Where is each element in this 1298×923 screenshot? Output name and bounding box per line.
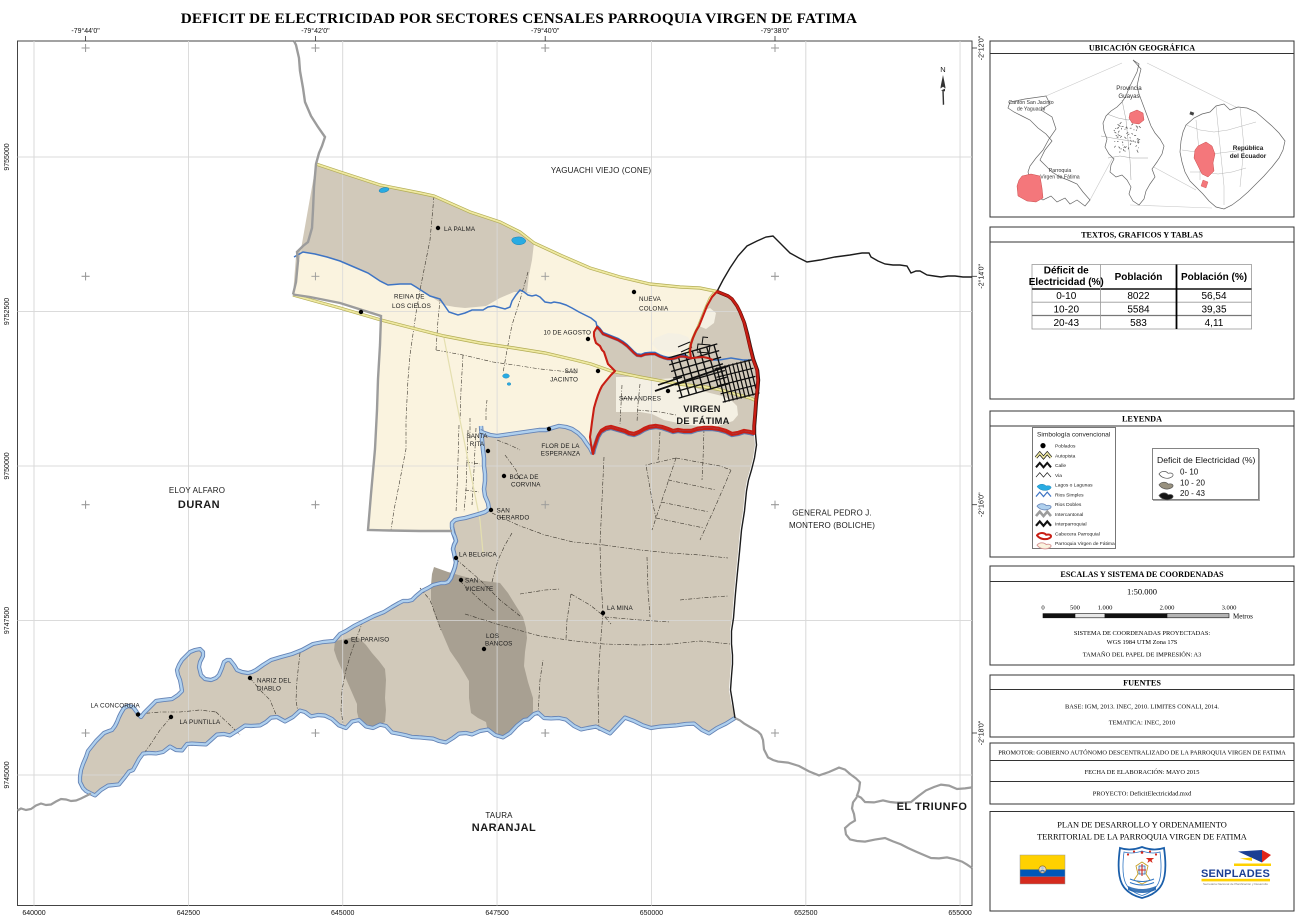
svg-text:1:50.000: 1:50.000 <box>1127 587 1157 597</box>
svg-text:FECHA DE ELABORACIÓN: MAYO 2: FECHA DE ELABORACIÓN: MAYO 2015 <box>1085 768 1200 776</box>
svg-text:0- 10: 0- 10 <box>1180 468 1199 477</box>
svg-text:WGS 1984 UTM Zona 17S: WGS 1984 UTM Zona 17S <box>1107 639 1178 646</box>
svg-text:EL PARAISO: EL PARAISO <box>351 637 389 644</box>
svg-text:YAGUACHI VIEJO (CONE): YAGUACHI VIEJO (CONE) <box>551 166 652 175</box>
svg-text:LEYENDA: LEYENDA <box>1122 415 1162 424</box>
svg-text:LA BELGICA: LA BELGICA <box>459 552 498 559</box>
svg-text:652500: 652500 <box>794 910 817 917</box>
svg-text:LA CONCORDIA: LA CONCORDIA <box>91 703 141 710</box>
svg-text:TEMATICA: INEC, 2010: TEMATICA: INEC, 2010 <box>1109 720 1176 727</box>
svg-text:10 DE AGOSTO: 10 DE AGOSTO <box>543 330 591 337</box>
svg-text:Déficit de: Déficit de <box>1044 266 1089 277</box>
svg-text:SAN: SAN <box>565 368 579 375</box>
svg-text:Población: Población <box>1115 272 1163 283</box>
svg-text:9750000: 9750000 <box>4 452 11 479</box>
svg-text:del Ecuador: del Ecuador <box>1230 153 1267 160</box>
svg-text:Simbología convencional: Simbología convencional <box>1037 432 1111 439</box>
svg-text:COLONIA: COLONIA <box>639 306 669 313</box>
svg-text:BANCOS: BANCOS <box>485 641 513 648</box>
svg-text:4,11: 4,11 <box>1205 318 1224 329</box>
svg-text:SANTA: SANTA <box>466 433 488 440</box>
svg-text:Parroquia Virgen de Fátima: Parroquia Virgen de Fátima <box>1055 541 1115 547</box>
svg-text:DIABLO: DIABLO <box>257 686 281 693</box>
svg-text:LA PALMA: LA PALMA <box>444 226 476 233</box>
svg-text:Metros: Metros <box>1233 613 1253 621</box>
svg-text:JACINTO: JACINTO <box>550 377 578 384</box>
svg-text:-79°44'0": -79°44'0" <box>71 27 100 35</box>
svg-text:-79°40'0": -79°40'0" <box>531 27 560 35</box>
svg-text:VICENTE: VICENTE <box>465 586 493 593</box>
svg-text:FLOR DE LA: FLOR DE LA <box>541 443 580 450</box>
svg-text:2.000: 2.000 <box>1160 605 1176 612</box>
svg-text:N: N <box>940 65 945 74</box>
svg-text:NUEVA: NUEVA <box>639 296 662 303</box>
svg-text:SAN ANDRES: SAN ANDRES <box>619 396 661 403</box>
svg-text:39,35: 39,35 <box>1201 304 1226 315</box>
svg-text:PROMOTOR: GOBIERNO AUTÓNOMO: PROMOTOR: GOBIERNO AUTÓNOMO DESCENTRALIZ… <box>998 749 1286 757</box>
svg-text:de Yaguachi: de Yaguachi <box>1017 107 1045 113</box>
svg-text:REINA DE: REINA DE <box>394 294 425 301</box>
svg-text:Parroquia: Parroquia <box>1049 168 1072 174</box>
svg-text:LOS CIELOS: LOS CIELOS <box>392 303 431 310</box>
svg-text:SAN: SAN <box>497 508 511 515</box>
svg-text:9752500: 9752500 <box>4 298 11 325</box>
svg-text:DEFICIT DE ELECTRICIDAD POR SE: DEFICIT DE ELECTRICIDAD POR SECTORES CEN… <box>181 10 857 27</box>
svg-text:ELOY ALFARO: ELOY ALFARO <box>169 486 225 495</box>
svg-text:MONTERO (BOLICHE): MONTERO (BOLICHE) <box>789 521 875 530</box>
svg-text:-79°42'0": -79°42'0" <box>301 27 330 35</box>
svg-text:9755000: 9755000 <box>4 143 11 170</box>
svg-text:RITA: RITA <box>470 441 485 448</box>
svg-text:9745000: 9745000 <box>4 761 11 788</box>
svg-text:NARANJAL: NARANJAL <box>472 822 537 834</box>
svg-text:-2°14'0": -2°14'0" <box>978 264 986 289</box>
svg-text:Cantón San Jacinto: Cantón San Jacinto <box>1008 100 1053 106</box>
svg-text:DURAN: DURAN <box>178 499 220 511</box>
svg-text:647500: 647500 <box>485 910 508 917</box>
svg-text:TAURA: TAURA <box>485 811 513 820</box>
svg-text:Cabecera Parroquial: Cabecera Parroquial <box>1055 531 1100 537</box>
svg-text:10-20: 10-20 <box>1053 304 1079 315</box>
svg-text:GENERAL PEDRO J.: GENERAL PEDRO J. <box>792 509 871 518</box>
svg-text:Lagos o Lagunas: Lagos o Lagunas <box>1055 483 1093 489</box>
svg-text:-2°18'0": -2°18'0" <box>978 720 986 745</box>
svg-text:Via: Via <box>1055 473 1062 479</box>
svg-text:SAN: SAN <box>465 578 479 585</box>
svg-text:TAMAÑO DEL PAPEL DE IMPRESIÓN:: TAMAÑO DEL PAPEL DE IMPRESIÓN: A3 <box>1083 651 1202 659</box>
svg-text:SISTEMA DE COORDENADAS PROYECT: SISTEMA DE COORDENADAS PROYECTADAS: <box>1074 630 1211 637</box>
svg-text:ESPERANZA: ESPERANZA <box>541 451 581 458</box>
svg-text:20 - 43: 20 - 43 <box>1180 489 1205 498</box>
svg-text:Electricidad (%): Electricidad (%) <box>1029 277 1104 288</box>
svg-text:BASE: IGM, 2013. INEC, 2010.: BASE: IGM, 2013. INEC, 2010. LIMITES CON… <box>1065 704 1219 711</box>
svg-text:Secretaría Nacional de Planifi: Secretaría Nacional de Planificación y D… <box>1203 882 1268 886</box>
svg-text:640000: 640000 <box>22 910 45 917</box>
svg-text:Deficit de Electricidad (%): Deficit de Electricidad (%) <box>1157 455 1256 465</box>
svg-text:EL TRIUNFO: EL TRIUNFO <box>897 801 968 813</box>
svg-text:NARIZ DEL: NARIZ DEL <box>257 678 292 685</box>
svg-text:GERARDO: GERARDO <box>497 515 530 522</box>
svg-text:Poblados: Poblados <box>1055 444 1076 450</box>
svg-text:Guayas: Guayas <box>1118 93 1139 100</box>
svg-text:10 - 20: 10 - 20 <box>1180 478 1205 487</box>
svg-text:56,54: 56,54 <box>1201 291 1226 302</box>
svg-text:Provincia: Provincia <box>1116 85 1142 92</box>
svg-text:655000: 655000 <box>948 910 971 917</box>
svg-text:Intercantonal: Intercantonal <box>1055 512 1083 518</box>
svg-text:Virgen de Fátima: Virgen de Fátima <box>1040 175 1080 181</box>
svg-text:642500: 642500 <box>177 910 200 917</box>
svg-text:Calle: Calle <box>1055 463 1066 469</box>
svg-text:TERRITORIAL DE LA PARROQUIA VI: TERRITORIAL DE LA PARROQUIA VIRGEN DE FA… <box>1037 833 1247 842</box>
svg-text:-2°12'0": -2°12'0" <box>978 35 986 60</box>
svg-text:645000: 645000 <box>331 910 354 917</box>
svg-text:8022: 8022 <box>1127 291 1150 302</box>
svg-text:Rios Simples: Rios Simples <box>1055 492 1084 498</box>
svg-text:DE FÁTIMA: DE FÁTIMA <box>676 416 729 426</box>
svg-text:CORVINA: CORVINA <box>511 482 541 489</box>
svg-text:SENPLADES: SENPLADES <box>1201 868 1270 880</box>
svg-text:PROYECTO: DeficitElectricida: PROYECTO: DeficitElectricidad.mxd <box>1093 791 1192 798</box>
svg-text:-79°38'0": -79°38'0" <box>761 27 790 35</box>
svg-text:0-10: 0-10 <box>1056 291 1076 302</box>
svg-text:LA MINA: LA MINA <box>607 605 634 612</box>
svg-text:Rios Dobles: Rios Dobles <box>1055 502 1082 508</box>
svg-text:VIRGEN: VIRGEN <box>683 404 720 414</box>
svg-text:9747500: 9747500 <box>4 607 11 634</box>
svg-text:500: 500 <box>1070 605 1081 612</box>
svg-text:650000: 650000 <box>640 910 663 917</box>
svg-text:LA PUNTILLA: LA PUNTILLA <box>180 719 221 726</box>
svg-text:583: 583 <box>1130 318 1147 329</box>
svg-text:Autopista: Autopista <box>1055 453 1076 459</box>
svg-text:Interparroquial: Interparroquial <box>1055 522 1087 528</box>
svg-text:3.000: 3.000 <box>1222 605 1238 612</box>
svg-text:5584: 5584 <box>1127 304 1150 315</box>
svg-text:ESCALAS Y SISTEMA DE COORDENAD: ESCALAS Y SISTEMA DE COORDENADAS <box>1060 570 1224 579</box>
svg-text:Población (%): Población (%) <box>1181 272 1247 283</box>
svg-text:UBICACIÓN GEOGRÁFICA: UBICACIÓN GEOGRÁFICA <box>1089 43 1195 53</box>
svg-text:BOCA DE: BOCA DE <box>510 474 539 481</box>
svg-text:TEXTOS, GRAFICOS Y TABLAS: TEXTOS, GRAFICOS Y TABLAS <box>1081 231 1203 240</box>
svg-text:PLAN DE DESARROLLO Y ORDENAMIE: PLAN DE DESARROLLO Y ORDENAMIENTO <box>1057 821 1227 830</box>
svg-text:LOS: LOS <box>486 633 499 640</box>
svg-text:1.000: 1.000 <box>1098 605 1114 612</box>
svg-text:FUENTES: FUENTES <box>1123 679 1161 688</box>
svg-text:República: República <box>1233 145 1264 152</box>
svg-text:-2°16'0": -2°16'0" <box>978 492 986 517</box>
svg-text:20-43: 20-43 <box>1053 318 1079 329</box>
